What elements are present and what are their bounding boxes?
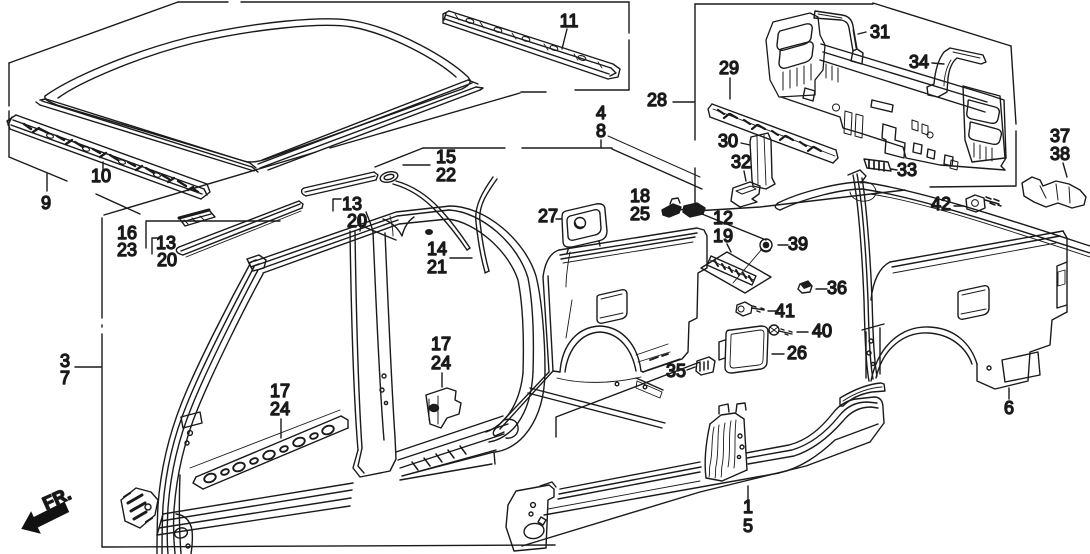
svg-text:14: 14: [427, 239, 447, 259]
svg-text:28: 28: [647, 90, 667, 110]
svg-text:39: 39: [788, 234, 808, 254]
svg-text:7: 7: [60, 368, 70, 388]
svg-text:24: 24: [270, 399, 290, 419]
svg-text:18: 18: [630, 186, 650, 206]
svg-text:34: 34: [909, 52, 929, 72]
svg-text:11: 11: [560, 11, 579, 31]
svg-text:19: 19: [713, 226, 733, 246]
svg-text:33: 33: [897, 160, 917, 180]
svg-text:26: 26: [787, 343, 807, 363]
svg-text:22: 22: [436, 165, 456, 185]
svg-text:21: 21: [427, 257, 447, 277]
svg-text:4: 4: [596, 103, 606, 123]
svg-text:23: 23: [117, 240, 137, 260]
svg-text:29: 29: [719, 58, 739, 78]
svg-text:31: 31: [870, 22, 890, 42]
svg-text:37: 37: [1050, 126, 1070, 146]
svg-text:FR.: FR.: [39, 484, 74, 514]
svg-text:38: 38: [1050, 144, 1070, 164]
svg-text:32: 32: [731, 152, 751, 172]
svg-text:20: 20: [157, 250, 177, 270]
svg-text:27: 27: [538, 206, 558, 226]
svg-text:24: 24: [431, 353, 451, 373]
svg-text:8: 8: [596, 121, 606, 141]
svg-text:17: 17: [431, 334, 451, 354]
svg-text:30: 30: [718, 131, 738, 151]
svg-text:9: 9: [41, 193, 51, 213]
svg-text:40: 40: [812, 321, 832, 341]
svg-text:10: 10: [91, 166, 111, 186]
svg-text:36: 36: [827, 278, 847, 298]
svg-text:6: 6: [1004, 398, 1014, 418]
svg-text:1: 1: [743, 497, 753, 517]
svg-text:25: 25: [630, 204, 650, 224]
svg-text:41: 41: [775, 301, 795, 321]
svg-text:5: 5: [743, 516, 753, 536]
svg-text:12: 12: [713, 208, 733, 228]
svg-text:17: 17: [270, 381, 290, 401]
svg-text:15: 15: [436, 147, 456, 167]
